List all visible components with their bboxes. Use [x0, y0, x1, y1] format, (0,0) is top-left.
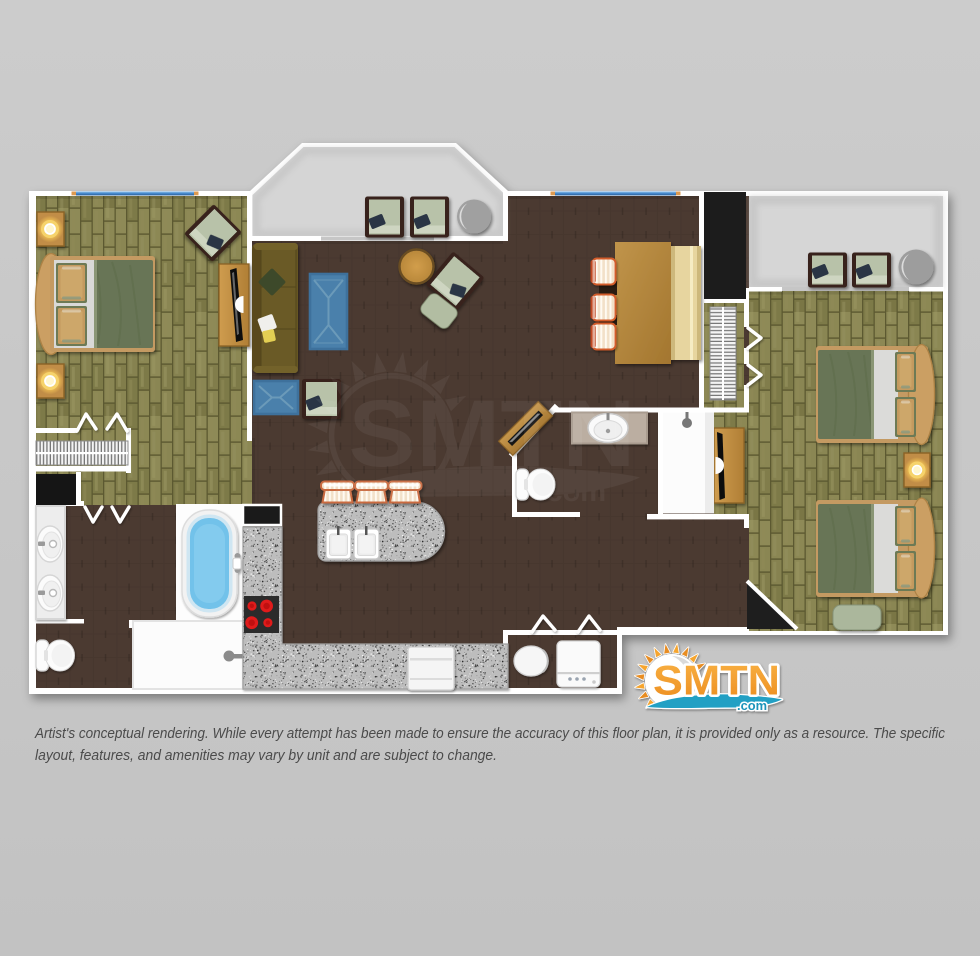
svg-text:Artist's conceptual rendering.: Artist's conceptual rendering. While eve… — [34, 725, 945, 742]
svg-text:.com: .com — [538, 475, 606, 507]
svg-text:layout, features, and amenitie: layout, features, and amenities may vary… — [35, 747, 497, 764]
svg-text:.com: .com — [737, 699, 767, 713]
svg-text:SMTN: SMTN — [348, 381, 635, 487]
svg-text:SMTN: SMTN — [653, 657, 780, 704]
